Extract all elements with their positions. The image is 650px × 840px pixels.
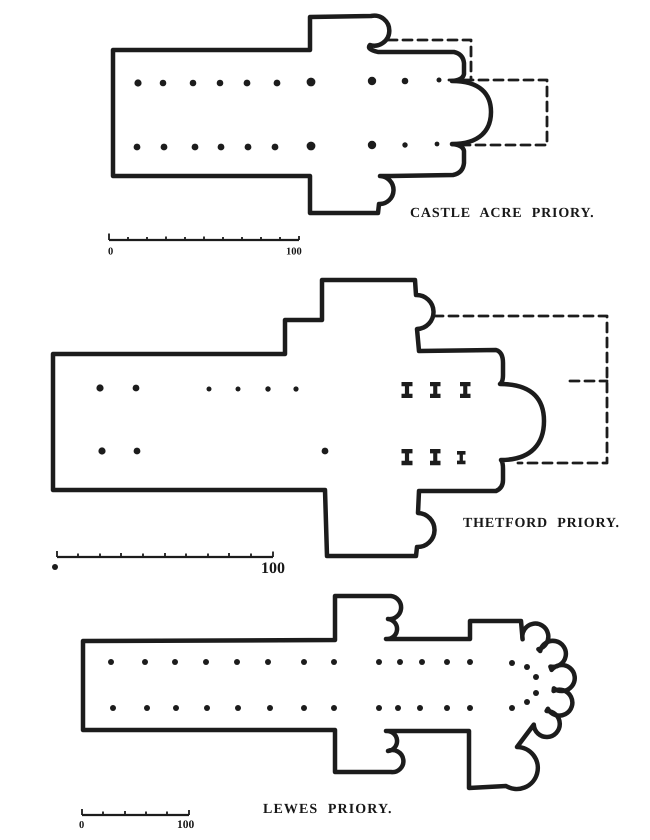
- svg-text:100: 100: [286, 247, 302, 258]
- svg-text:LEWES PRIORY.: LEWES PRIORY.: [263, 802, 393, 817]
- svg-text:0: 0: [79, 820, 84, 831]
- svg-text:100: 100: [177, 819, 195, 831]
- svg-text:CASTLE ACRE PRIORY.: CASTLE ACRE PRIORY.: [410, 206, 594, 221]
- svg-text:0: 0: [108, 247, 113, 258]
- svg-text:100: 100: [261, 560, 285, 577]
- svg-text:THETFORD PRIORY.: THETFORD PRIORY.: [463, 516, 620, 531]
